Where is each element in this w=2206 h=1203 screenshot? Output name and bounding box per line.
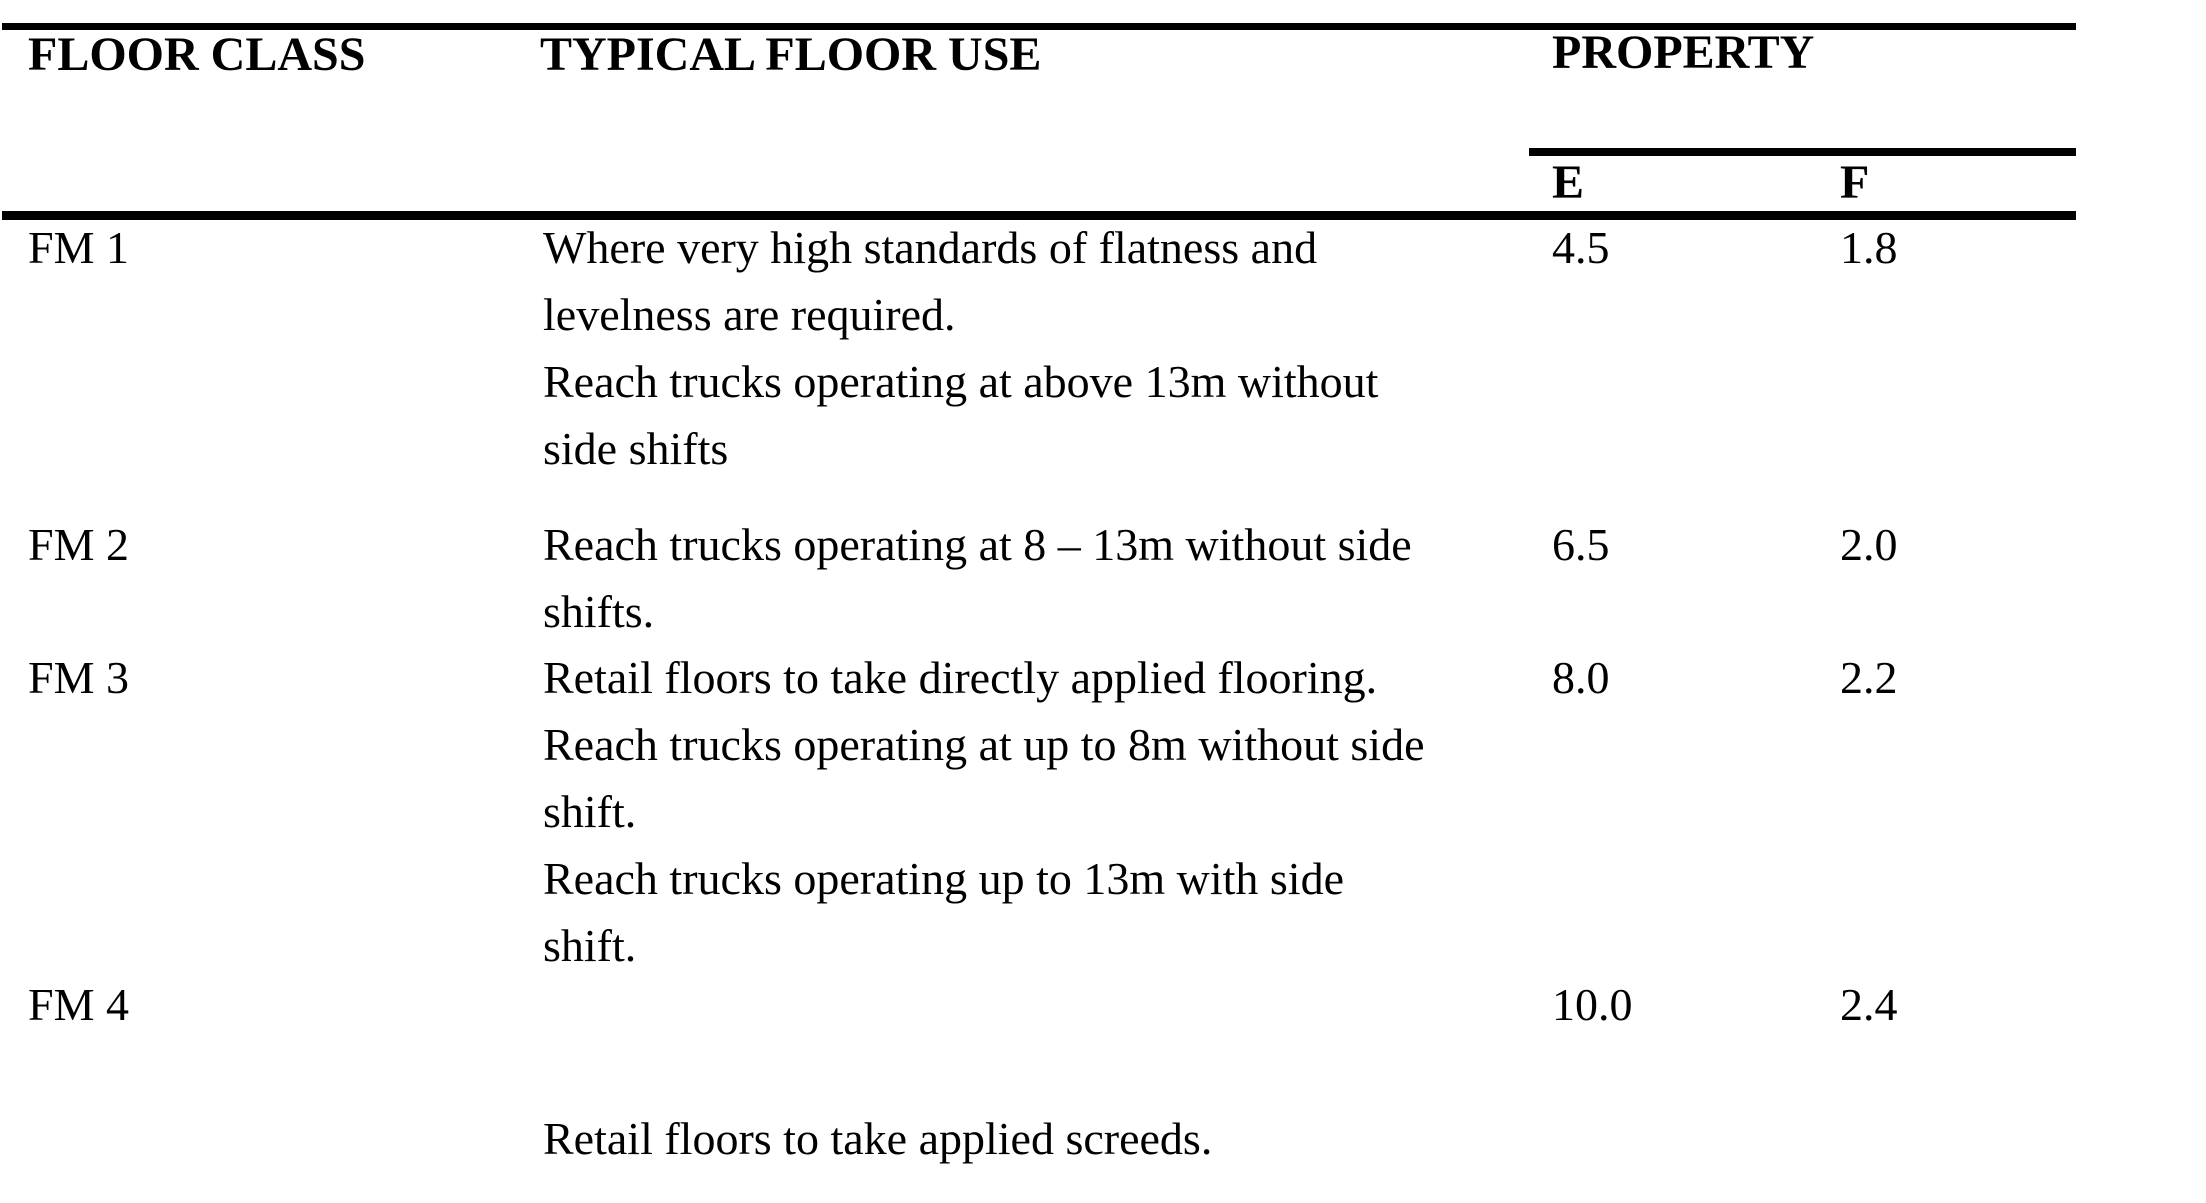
typical-floor-use-cell: Reach trucks operating at 8 – 13m withou… <box>543 511 1412 645</box>
floor-class-cell: FM 4 <box>28 971 129 1038</box>
typical-floor-use-cell: Where very high standards of flatness an… <box>543 214 1378 482</box>
floor-class-cell: FM 1 <box>28 214 129 281</box>
property-e-value: 8.0 <box>1552 644 1610 711</box>
column-header-typical-floor-use: TYPICAL FLOOR USE <box>540 21 1041 88</box>
column-subheader-f: F <box>1840 149 1869 216</box>
property-e-value: 10.0 <box>1552 971 1633 1038</box>
property-f-value: 2.2 <box>1840 644 1898 711</box>
property-e-value: 6.5 <box>1552 511 1610 578</box>
typical-floor-use-cell: Retail floors to take directly applied f… <box>543 644 1424 979</box>
floor-classification-table: FLOOR CLASS TYPICAL FLOOR USE PROPERTY E… <box>0 0 2206 1203</box>
property-f-value: 1.8 <box>1840 214 1898 281</box>
floor-class-cell: FM 2 <box>28 511 129 578</box>
column-header-property: PROPERTY <box>1552 19 1814 86</box>
property-f-value: 2.0 <box>1840 511 1898 578</box>
property-e-value: 4.5 <box>1552 214 1610 281</box>
property-subheader-rule <box>1529 148 2076 156</box>
typical-floor-use-cell: Retail floors to take applied screeds. W… <box>543 971 1400 1203</box>
column-header-floor-class: FLOOR CLASS <box>28 21 365 88</box>
property-f-value: 2.4 <box>1840 971 1898 1038</box>
floor-class-cell: FM 3 <box>28 644 129 711</box>
use-paragraph-1: Retail floors to take applied screeds. <box>543 1105 1400 1172</box>
column-subheader-e: E <box>1552 149 1584 216</box>
